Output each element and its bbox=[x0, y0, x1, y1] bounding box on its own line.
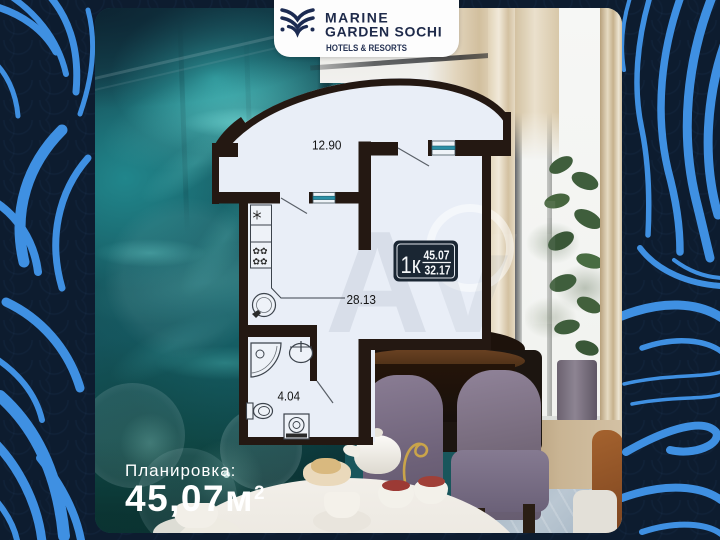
svg-text:HOTELS & RESORTS: HOTELS & RESORTS bbox=[326, 43, 407, 53]
svg-text:45.07: 45.07 bbox=[424, 249, 450, 263]
svg-text:✿✿: ✿✿ bbox=[253, 246, 269, 256]
svg-text:✿✿: ✿✿ bbox=[253, 257, 269, 267]
svg-text:28.13: 28.13 bbox=[347, 292, 377, 307]
svg-text:1к: 1к bbox=[401, 252, 421, 279]
svg-text:12.90: 12.90 bbox=[312, 138, 342, 153]
svg-text:v: v bbox=[428, 201, 509, 363]
svg-text:A: A bbox=[325, 201, 430, 363]
svg-text:GARDEN SOCHI: GARDEN SOCHI bbox=[325, 24, 442, 40]
svg-text:32.17: 32.17 bbox=[425, 264, 451, 278]
svg-text:4.04: 4.04 bbox=[278, 389, 301, 404]
